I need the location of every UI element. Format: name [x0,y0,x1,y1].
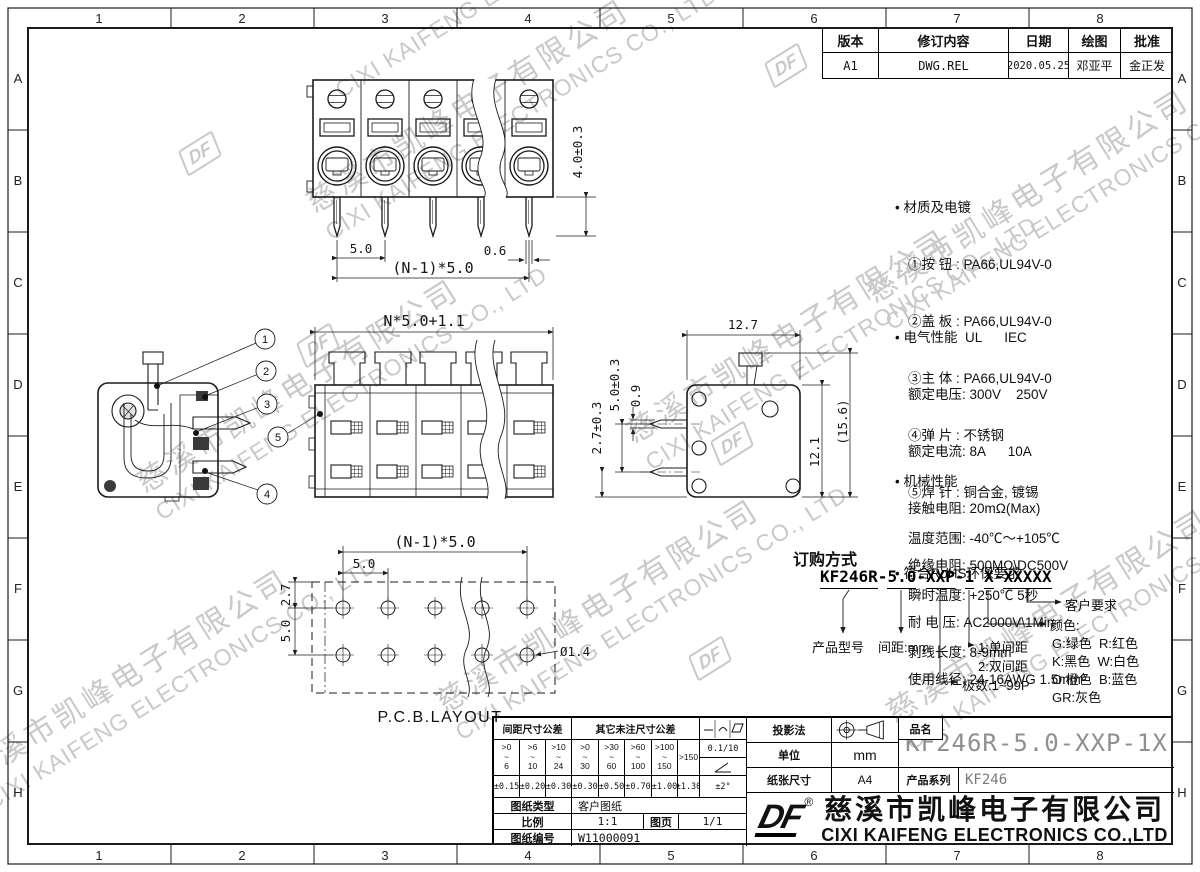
callout-1: 1 [262,334,268,346]
scale-value: 1:1 [572,814,644,830]
revision-approved-by: 金正发 [1121,53,1173,78]
part-name-value: KF246R-5.0-XXP-1X [905,729,1168,757]
code-sep: - [878,567,888,589]
drawing-no-label: 图纸编号 [494,830,572,846]
ordering-label-double: 2:双间距 [978,656,1028,675]
dim-pitch: 5.0 [350,241,373,256]
angularity-icon [700,758,747,776]
revision-header: 版本 [823,28,879,53]
dim-pcb-pitch: 5.0 [353,556,376,571]
paper-size-value: A4 [832,768,899,793]
tol-value: ±1.00 [652,776,678,798]
page-label: 图页 [644,814,679,830]
revision-header: 日期 [1009,28,1069,53]
ordering-code: KF246R-5.0-XXP-1X-XXXXX [820,567,1052,589]
callout-4: 4 [264,489,270,501]
revision-header: 修订内容 [879,28,1009,53]
dim-span: (N-1)*5.0 [392,259,473,277]
ordering-label-pitch: 间距:mm [878,637,929,656]
dim-total-width: N*5.0+1.1 [383,312,464,330]
code-poles: XXP [926,567,955,589]
dim-pcb-hole: Ø1.4 [560,644,590,659]
dim-depth: 12.7 [728,317,758,332]
dim-pin-length: 4.0±0.3 [570,126,585,179]
tol-symbols-header [700,718,747,740]
code-custom: XXXXX [1003,567,1051,589]
tol-value: ±0.70 [625,776,652,798]
part-name-label: 品名 [899,718,943,740]
dim-pcb-edge: 2.7 [278,584,293,607]
note-electrical-title: • 电气性能 UL IEC [895,328,1085,347]
scale-label: 比例 [494,814,572,830]
callout-5: 5 [275,432,281,444]
pcb-dimensions [288,546,558,655]
drawing-type-value: 客户图纸 [572,798,747,814]
code-sep: - [994,567,1004,589]
first-angle-projection-icon [832,718,899,743]
unit-label: 单位 [747,743,832,768]
ordering-label-poles: 极数:1~99P [962,675,1030,694]
tol-value: ±0.30 [546,776,572,798]
dim-height: 12.1 [807,437,822,467]
projection-label: 投影法 [747,718,832,743]
ordering-color-option: K:黑色 W:白色 [1052,651,1139,670]
revision-header: 批准 [1121,28,1173,53]
title-block: 间距尺寸公差 其它未注尺寸公差 >0 ~ 6 >6 ~ 10 >10 ~ 24 … [492,716,1172,844]
engineering-drawing-page: 慈溪市凯峰电子有限公司 CIXI KAIFENG ELECTRONICS CO.… [0,0,1200,872]
code-pitch: 5.0 [887,567,916,589]
tol-value: ±1.30 [678,776,700,798]
right-view: 12.7 0 [589,317,858,497]
callout-2: 2 [263,366,269,378]
registered-mark: ® [804,793,813,809]
ordering-color-option: GR:灰色 [1052,687,1101,706]
drawing-no-value: W11000091 [572,830,747,846]
tol-other-header: 其它未注尺寸公差 [572,718,700,740]
tol-range: >100 ~ 150 [652,740,678,776]
paper-size-label: 纸张尺寸 [747,768,832,793]
code-sep: - [955,567,965,589]
revision-table: 版本 修订内容 日期 绘图 批准 A1 DWG.REL 2020.05.25 邓… [822,28,1173,79]
tol-value: ±0.30 [572,776,599,798]
tol-range: >0 ~ 6 [494,740,520,776]
dim-pin-pitch: 5.0±0.3 [607,359,622,412]
callout-3: 3 [264,399,270,411]
tol-range: >30 ~ 60 [599,740,625,776]
series-value-cell: KF246 [959,768,1174,793]
tol-range: >6 ~ 10 [520,740,546,776]
note-material-title: • 材质及电镀 [895,198,1052,217]
tol-range-last: >150 [678,740,700,776]
series-label: 产品系列 [899,768,959,793]
ordering-color-option: O:橙色 B:蓝色 [1052,669,1137,688]
straightness-icon [701,719,746,739]
company-block: DF ® 慈溪市凯峰电子有限公司 CIXI KAIFENG ELECTRONIC… [747,793,1174,846]
note-mechanical-title: • 机械性能 [895,472,1060,491]
tol-pitch-header: 间距尺寸公差 [494,718,572,740]
company-name-en: CIXI KAIFENG ELECTRONICS CO.,LTD [815,825,1174,845]
tol-range: >10 ~ 24 [546,740,572,776]
dim-pin-offset: 2.7±0.3 [589,402,604,455]
series-value: KF246 [965,772,1007,788]
tol-value: ±0.50 [599,776,625,798]
unit-value: mm [832,743,899,768]
revision-content: DWG.REL [879,53,1009,78]
pcb-layout-label: P.C.B.LAYOUT [378,709,503,726]
callouts: 1 2 3 5 4 [154,329,323,504]
right-view-dimensions [595,353,858,497]
dim-pcb-row: 5.0 [278,620,293,643]
company-name-cn: 慈溪市凯峰电子有限公司 [815,795,1174,825]
code-sep: - [916,567,926,589]
code-spacing: 1 [965,567,975,589]
revision-drawn-by: 邓亚平 [1069,53,1121,78]
tol-value: ±0.15 [494,776,520,798]
tol-range: >0 ~ 30 [572,740,599,776]
dim-pin-thickness: 0.9 [628,385,643,408]
code-sep [974,567,984,589]
tol-angle-value: ±2° [700,776,747,798]
company-names: 慈溪市凯峰电子有限公司 CIXI KAIFENG ELECTRONICS CO.… [815,795,1174,845]
pcb-view: (N-1)*5.0 5.0 2.7 5.0 Ø1.4 P.C.B.LAYOUT [278,533,590,726]
section-view: 1 2 3 5 4 [98,329,323,504]
ordering-label-single: 1:单间距 [978,637,1028,656]
dim-total-height: (15.6) [835,399,850,444]
code-model: KF246R [820,567,878,589]
dim-pcb-span: (N-1)*5.0 [394,533,475,551]
ordering-color-option: G:绿色 R:红色 [1052,633,1138,652]
revision-date: 2020.05.25 [1009,53,1069,78]
code-color: X [984,567,994,589]
note-line: ①按 钮 : PA66,UL94V-0 [895,255,1052,274]
company-logo: DF [754,801,804,837]
tol-value: ±0.20 [520,776,546,798]
tol-flatness-value: 0.1/10 [700,740,747,758]
tol-range: >60 ~ 100 [625,740,652,776]
top-view: 4.0±0.3 5.0 0.6 (N-1)*5.0 [307,79,596,282]
front-view: N*5.0+1.1 [309,312,553,499]
drawing-type-label: 图纸类型 [494,798,572,814]
revision-version: A1 [823,53,879,78]
ordering-label-color-header: 颜色: [1050,615,1080,634]
revision-header: 绘图 [1069,28,1121,53]
page-value: 1/1 [679,814,747,830]
ordering-label-customer: 客户要求 [1065,595,1117,614]
ordering-label-product: 产品型号 [812,637,864,656]
note-line: 额定电压: 300V 250V [895,385,1085,404]
dim-pin-width: 0.6 [484,243,507,258]
